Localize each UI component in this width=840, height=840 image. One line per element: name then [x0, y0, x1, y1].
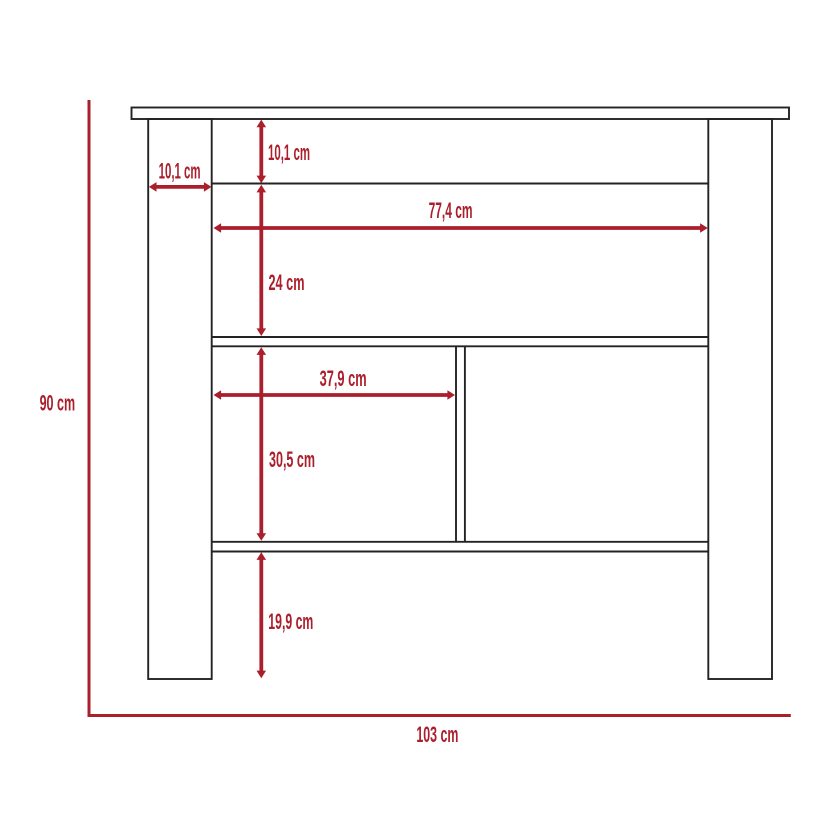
svg-text:19,9 cm: 19,9 cm [268, 609, 313, 634]
svg-text:103 cm: 103 cm [416, 722, 458, 747]
svg-text:37,9 cm: 37,9 cm [320, 366, 367, 391]
svg-text:30,5 cm: 30,5 cm [269, 447, 315, 472]
svg-text:24 cm: 24 cm [269, 270, 305, 295]
svg-text:77,4 cm: 77,4 cm [429, 198, 473, 223]
svg-text:10,1 cm: 10,1 cm [268, 140, 310, 165]
svg-text:90 cm: 90 cm [40, 391, 76, 416]
svg-text:10,1 cm: 10,1 cm [159, 159, 201, 184]
